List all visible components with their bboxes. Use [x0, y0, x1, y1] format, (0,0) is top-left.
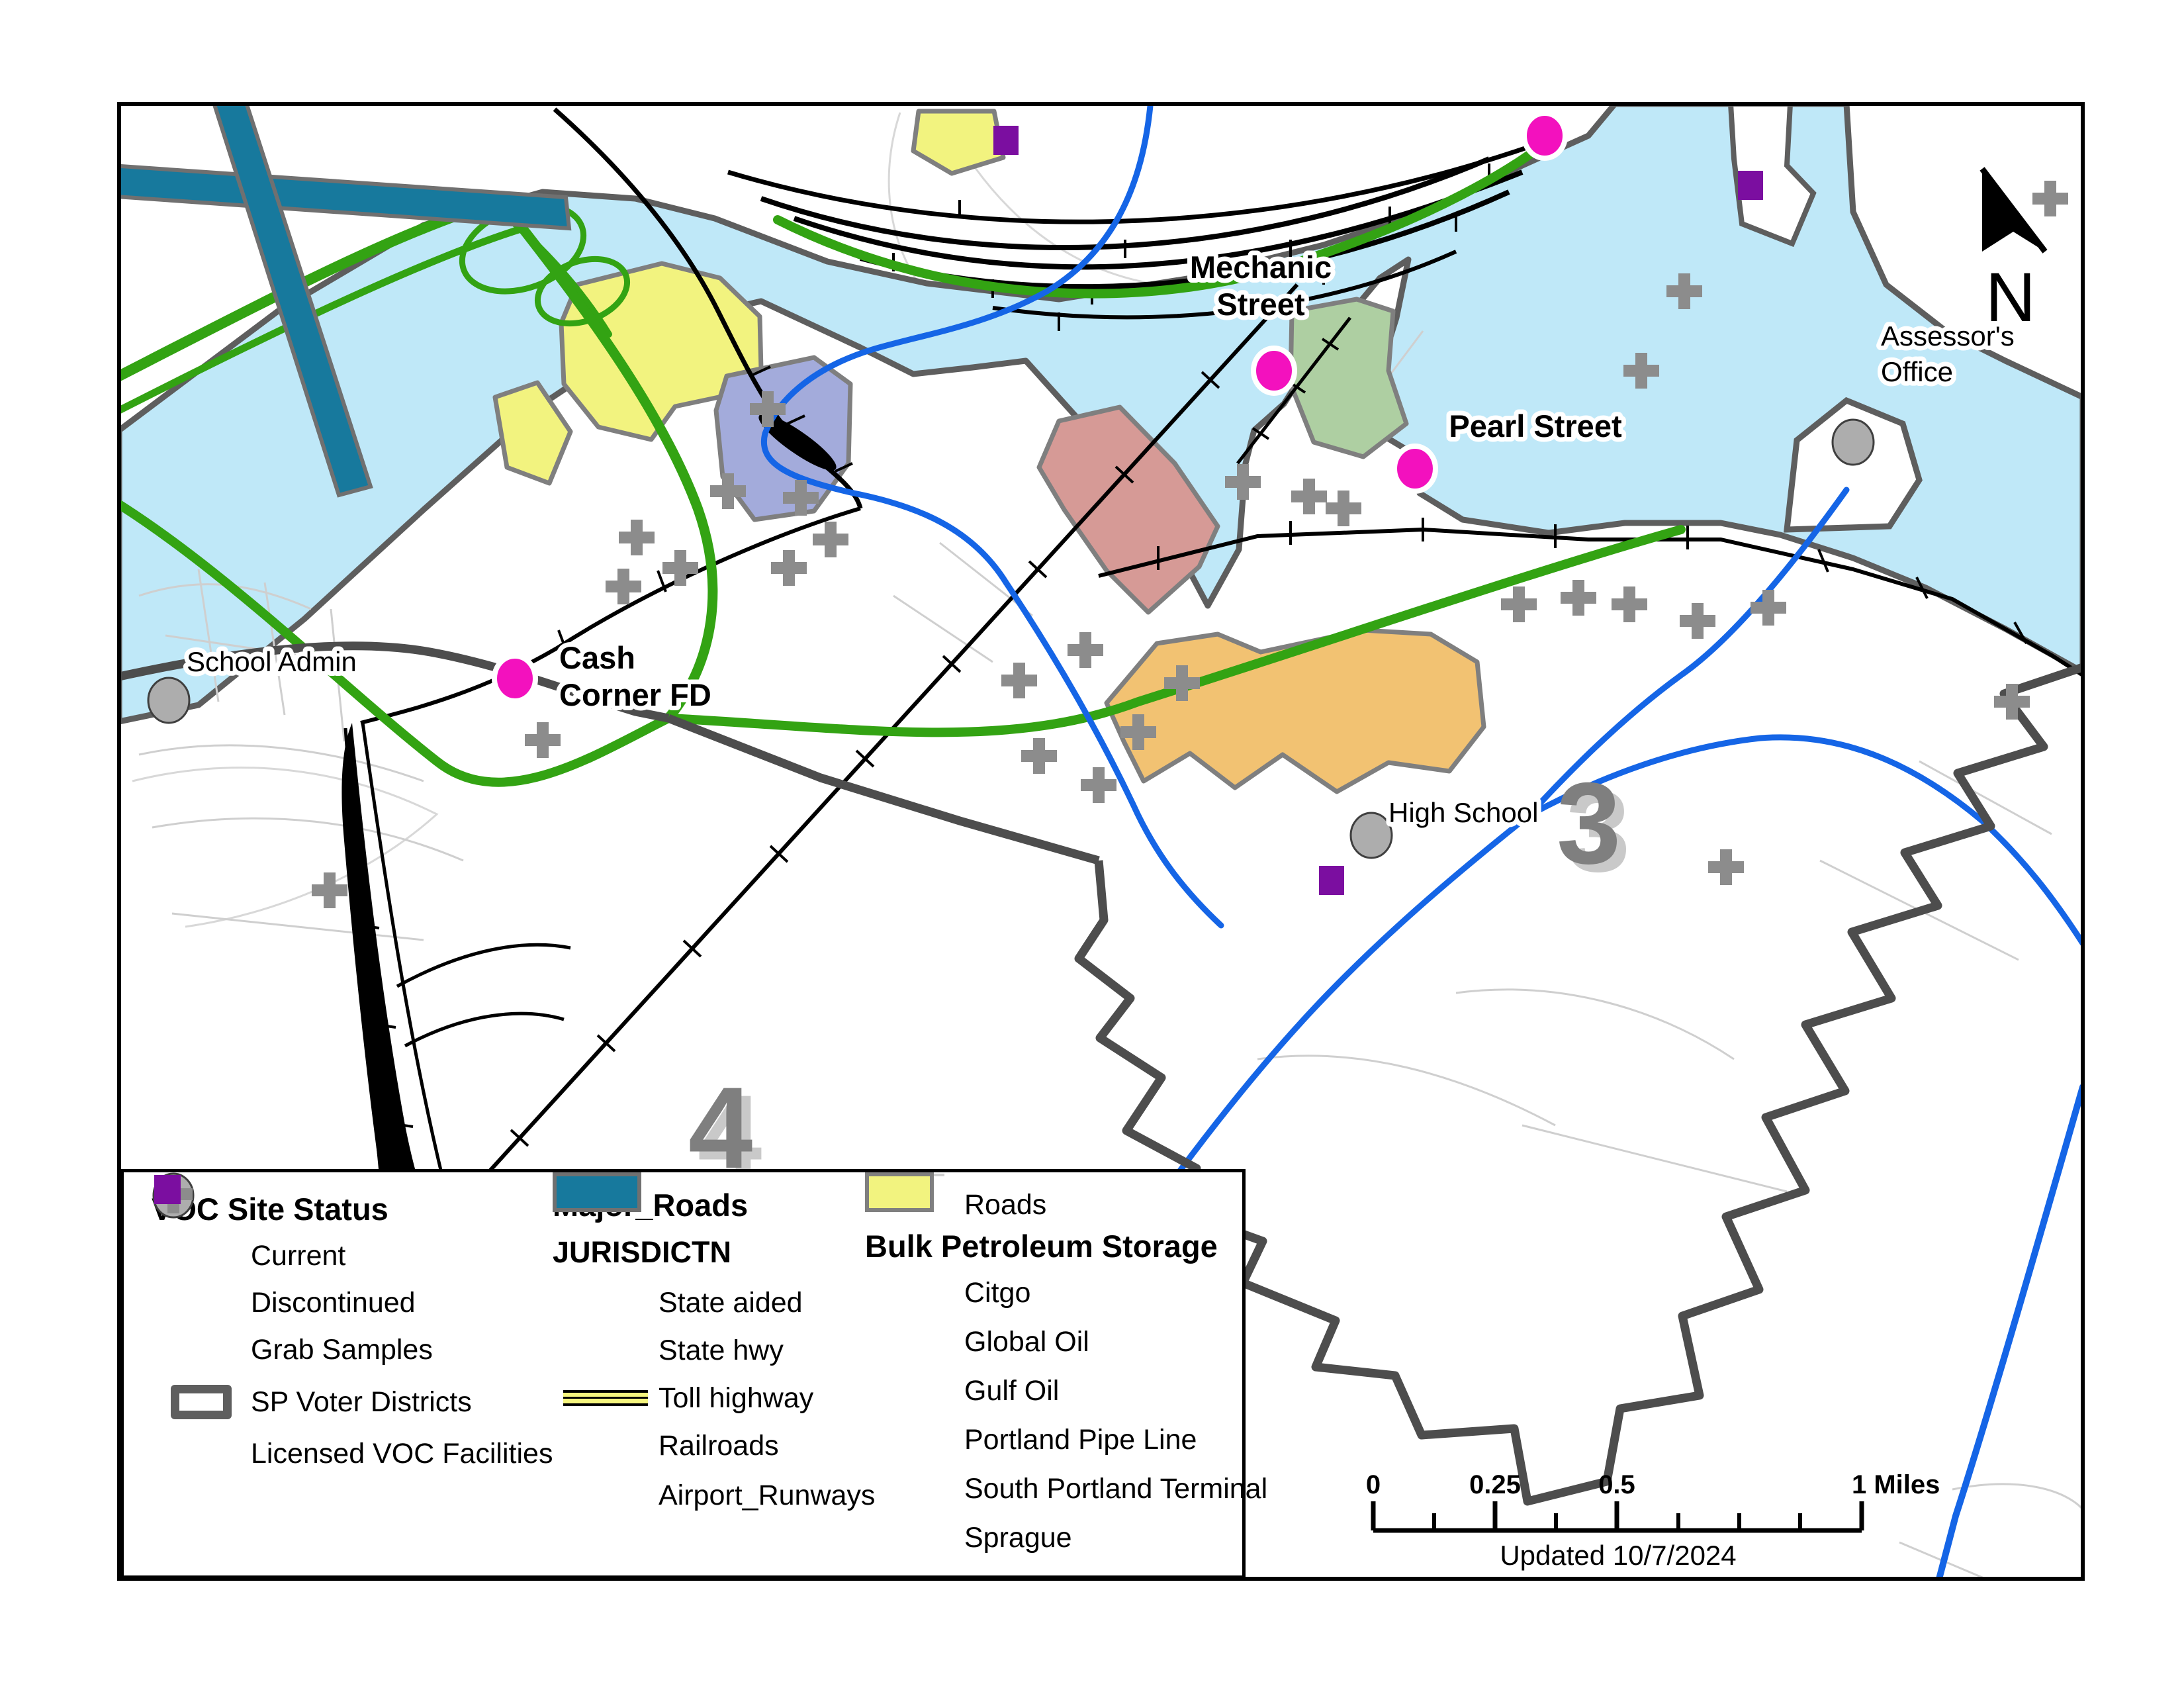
legend-item-licensed-voc: Licensed VOC Facilities	[152, 1430, 522, 1477]
map-page: MechanicStreetPearl StreetCashCorner FDS…	[0, 0, 2184, 1688]
legend-item-gulf-oil: Gulf Oil	[865, 1366, 1236, 1415]
legend-voc-section: VOC Site Status Current Discontinued Gra…	[152, 1172, 522, 1477]
legend-item-airport-runways: Airport_Runways	[553, 1470, 850, 1521]
legend-item-sprague: Sprague	[865, 1513, 1236, 1562]
legend-item-global-oil: Global Oil	[865, 1317, 1236, 1366]
legend-roads-section: Major_Roads JURISDICTN State aided State…	[553, 1172, 850, 1521]
voter-districts-swatch-icon	[152, 1385, 251, 1419]
map-label: Office	[1881, 356, 1953, 387]
legend-item-toll-highway: Toll highway	[553, 1374, 850, 1422]
current-marker	[1524, 113, 1565, 158]
legend-item-railroads: Railroads	[553, 1422, 850, 1470]
map-label: 0	[1366, 1470, 1381, 1499]
map-label: High School	[1388, 797, 1538, 828]
map-label: 1 Miles	[1852, 1470, 1940, 1499]
map-label: 0.25	[1469, 1470, 1521, 1499]
legend-item-discontinued: Discontinued	[152, 1280, 522, 1327]
legend-item-state-aided: State aided	[553, 1279, 850, 1327]
legend-voc-title: VOC Site Status	[152, 1191, 522, 1227]
citgo-area	[1291, 299, 1406, 457]
map-label: Corner FD	[559, 677, 711, 712]
map-label: Updated 10/7/2024	[1500, 1540, 1736, 1571]
legend-item-current: Current	[152, 1233, 522, 1280]
legend-item-portland-pipe-line: Portland Pipe Line	[865, 1415, 1236, 1464]
legend-item-grab-samples: Grab Samples	[152, 1327, 522, 1374]
current-marker	[1253, 348, 1295, 393]
current-marker	[1394, 446, 1435, 491]
discontinued-marker	[1833, 420, 1874, 465]
map-label: 0.5	[1598, 1470, 1635, 1499]
map-label: Street	[1216, 287, 1305, 322]
legend-bulk-title: Bulk Petroleum Storage	[865, 1228, 1236, 1264]
voc-marker	[1738, 171, 1763, 200]
voc-marker	[1319, 866, 1344, 895]
voc-marker	[993, 126, 1019, 155]
current-marker	[494, 656, 535, 701]
toll-highway-swatch-icon	[553, 1390, 659, 1406]
map-label: School Admin	[187, 646, 357, 677]
legend-jurisdiction-title: JURISDICTN	[553, 1235, 850, 1270]
map-label: Mechanic	[1190, 250, 1332, 285]
map-label: Pearl Street	[1449, 408, 1622, 444]
discontinued-marker	[1351, 813, 1392, 858]
legend-box: VOC Site Status Current Discontinued Gra…	[120, 1169, 1246, 1579]
legend-item-citgo: Citgo	[865, 1268, 1236, 1317]
legend-item-south-portland-terminal: South Portland Terminal	[865, 1464, 1236, 1513]
map-label: N	[1985, 259, 2036, 336]
discontinued-marker	[148, 678, 189, 723]
legend-item-voter-districts: SP Voter Districts	[152, 1374, 522, 1430]
legend-bulk-section: Roads Bulk Petroleum Storage Citgo Globa…	[865, 1172, 1236, 1562]
map-label: Cash	[559, 640, 635, 675]
map-label: 3	[1557, 759, 1621, 888]
legend-item-state-hwy: State hwy	[553, 1327, 850, 1374]
